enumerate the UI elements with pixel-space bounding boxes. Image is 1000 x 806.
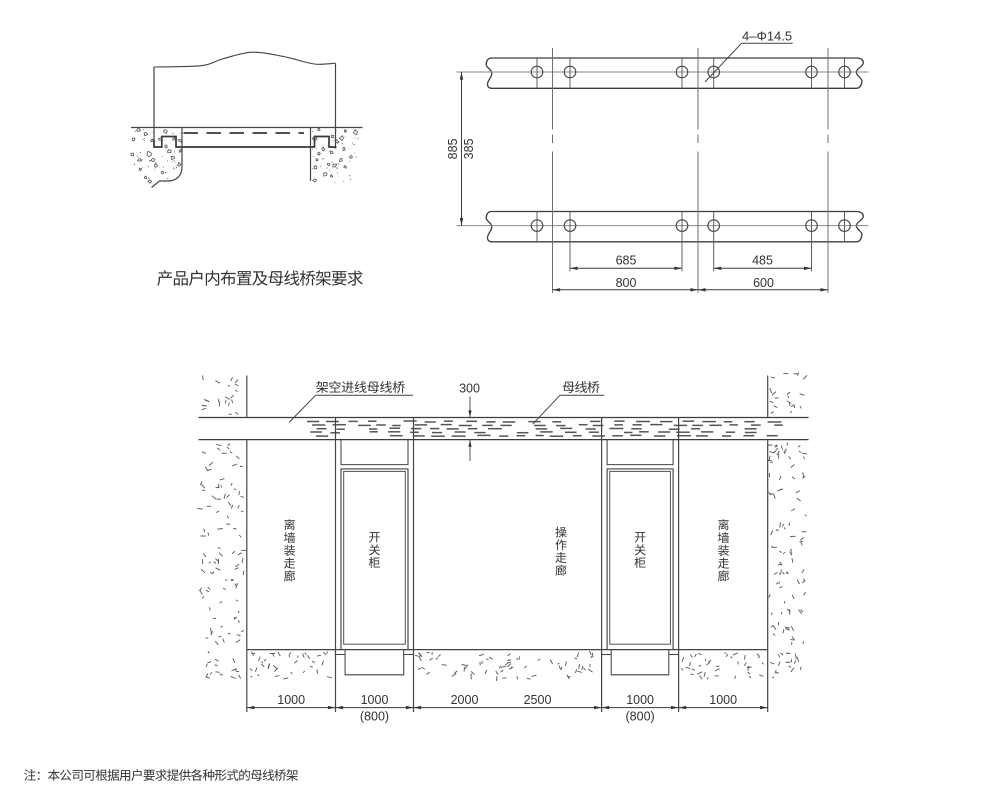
- svg-text:1000: 1000: [626, 693, 654, 707]
- svg-text:1000: 1000: [709, 693, 737, 707]
- svg-text:885: 885: [446, 138, 460, 159]
- svg-text:2500: 2500: [524, 693, 552, 707]
- svg-text:485: 485: [752, 254, 773, 268]
- svg-text:385: 385: [462, 138, 476, 159]
- svg-text:4–Φ14.5: 4–Φ14.5: [742, 29, 792, 44]
- svg-text:2000: 2000: [451, 693, 479, 707]
- svg-text:(800): (800): [626, 709, 655, 723]
- svg-text:600: 600: [753, 276, 774, 290]
- svg-text:800: 800: [616, 276, 637, 290]
- svg-text:300: 300: [459, 382, 480, 396]
- svg-text:1000: 1000: [361, 693, 389, 707]
- svg-text:(800): (800): [360, 709, 389, 723]
- svg-text:685: 685: [616, 254, 637, 268]
- svg-text:1000: 1000: [277, 693, 305, 707]
